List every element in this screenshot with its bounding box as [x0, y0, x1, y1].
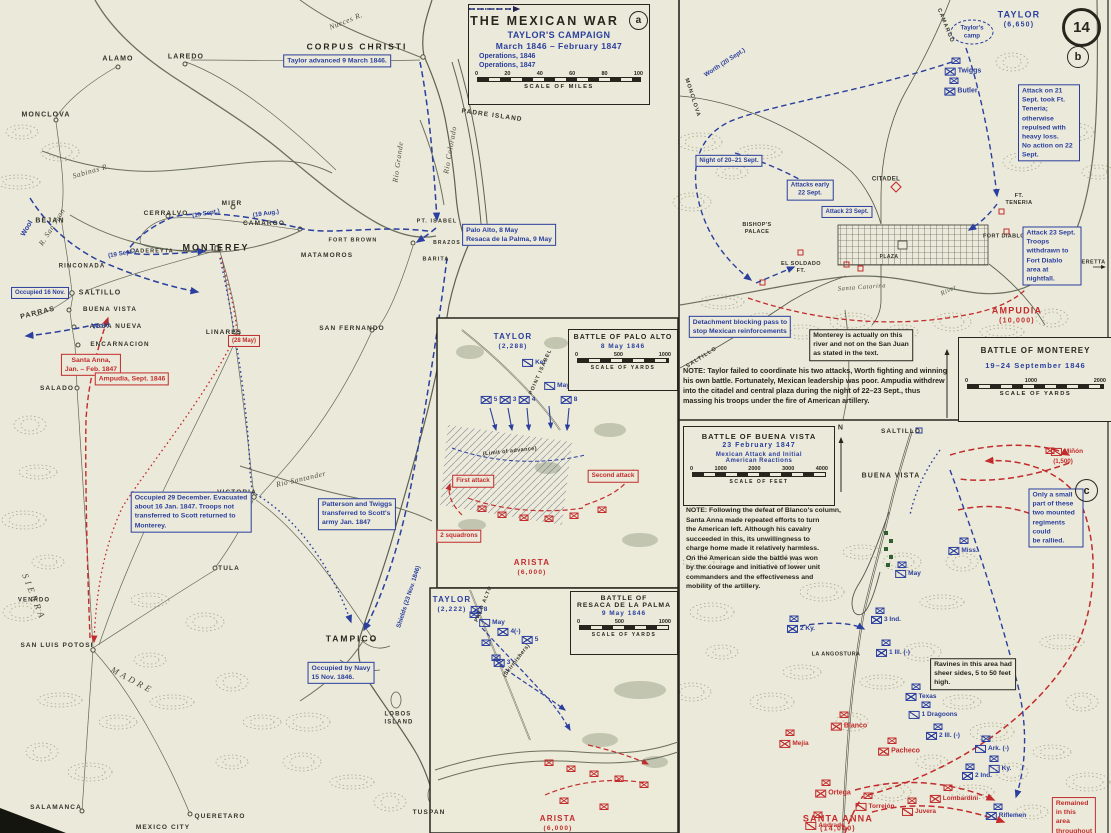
panel-c-badge: c: [1075, 479, 1098, 502]
unit-label-4: 4: [519, 396, 536, 404]
miles-scale-caption: SCALE OF MILES: [469, 84, 649, 90]
unit-label-pacheco: Pacheco: [878, 748, 920, 757]
resaca-scale-caption: SCALE OF YARDS: [571, 632, 677, 638]
place-label-parras: PARRAS: [20, 305, 57, 322]
unit-label-twiggs: Twiggs: [945, 68, 982, 77]
place-label-cerralvo: CERRALVO: [144, 210, 189, 218]
scale-bar: [579, 625, 669, 630]
place-label-matamoros: MATAMOROS: [301, 252, 353, 260]
place-label-arista: ARISTA: [514, 558, 550, 568]
unit-label-lombardini: Lombardini: [930, 795, 978, 803]
place-label-lobos-island: LOBOS ISLAND: [385, 712, 414, 727]
note-box-ampudia-sept-1846: Ampudia, Sept. 1846: [95, 372, 169, 385]
unit-label-andrade: Andrade: [805, 822, 844, 830]
monterey-date: 19–24 September 1846: [959, 361, 1111, 370]
note-box-attack-23-sept-troops-withdr: Attack 23 Sept. Troops withdrawn to Fort…: [1023, 226, 1082, 285]
river-label-sabinas-r: Sabinas R.: [71, 161, 110, 181]
unit-label-texas: Texas: [906, 693, 937, 701]
place-label-arista: ARISTA: [540, 814, 576, 824]
unit-label-blanco: Blanco: [831, 723, 867, 732]
place-label-queretaro: QUERETARO: [195, 813, 246, 821]
note-box-remained-in-this-area-throug: Remained in this area throughout battle.: [1052, 797, 1096, 833]
monterey-scale-caption: SCALE OF YARDS: [959, 391, 1111, 397]
place-label-tuspan: TUSPAN: [413, 809, 446, 817]
place-label-taylor: TAYLOR: [998, 9, 1041, 20]
buena-vista-scale-caption: SCALE OF FEET: [684, 479, 834, 485]
place-label-2-222: (2,222): [438, 606, 467, 614]
map-dates: March 1846 – February 1847: [469, 41, 649, 51]
place-label-citadel: CITADEL: [872, 176, 900, 184]
unit-label-mejia: Mejia: [779, 740, 808, 748]
map-note-note-following-the-defeat-of: NOTE: Following the defeat of Blanco's c…: [686, 506, 862, 592]
note-box-second-attack: Second attack: [588, 470, 639, 483]
place-label-padre-island: PADRE ISLAND: [461, 108, 523, 125]
place-label-6-000: (6,000): [544, 825, 573, 833]
map-note-note-taylor-failed-to-coordi: NOTE: Taylor failed to coordinate his tw…: [683, 366, 951, 406]
place-label-15-sept: (15 Sept.): [192, 208, 221, 220]
unit-label-butler: Butler: [944, 88, 977, 97]
place-label-alamo: ALAMO: [102, 56, 133, 65]
river-label-r-san-juan: R. San Juan: [37, 206, 68, 247]
place-label-19-sept: (19 Sept.): [108, 248, 137, 260]
place-label-san-luis-potosi: SAN LUIS POTOSI: [20, 642, 93, 650]
unit-label-ortega: Ortega: [815, 790, 851, 799]
unit-label-miss: Miss.: [948, 547, 977, 555]
legend-operations-1846: Operations, 1846: [469, 53, 649, 60]
place-label-shields-23-nov-1846: Shields (23 Nov. 1846): [395, 565, 422, 629]
place-label-ampudia: AMPUDIA: [992, 305, 1042, 316]
unit-label-2-ill: 2 Ill. (-): [926, 732, 960, 740]
place-label-19-aug: (19 Aug.): [252, 208, 279, 219]
place-label-mier: MIER: [222, 200, 243, 208]
place-label-encarnacion: ENCARNACION: [90, 341, 149, 349]
panel-a-badge: a: [629, 11, 648, 30]
note-box-only-a-small-part-of-these-t: Only a small part of these two mounted r…: [1029, 488, 1084, 547]
place-label-worth-20-sept: Worth (20 Sept.): [703, 47, 747, 79]
note-box-attack-on-21-sept-took-ft-te: Attack on 21 Sept. took Ft. Teneria; oth…: [1018, 84, 1080, 161]
place-label-monclova: MONCLOVA: [682, 78, 701, 119]
note-box-2-squadrons: 2 squadrons: [436, 530, 481, 543]
note-box-occupied-by-navy-15-nov-1846: Occupied by Navy 15 Nov. 1846.: [308, 662, 375, 684]
legend-1847-label: Operations, 1847: [479, 62, 535, 69]
unit-label-ark: Ark. (-): [975, 745, 1009, 753]
map-number-badge: 14: [1062, 8, 1101, 47]
river-label-nueces-r: Nueces R.: [328, 10, 364, 32]
place-label-camargo: CAMARGO: [935, 8, 955, 45]
place-label-laredo: LAREDO: [168, 54, 204, 63]
place-label-limit-of-advance: (Limit of advance): [483, 446, 538, 459]
unit-label-5: 5: [481, 396, 498, 404]
note-box-occupied-16-nov: Occupied 16 Nov.: [11, 287, 69, 299]
place-label-cadereyta: CADEREYTA: [130, 249, 174, 256]
note-box-first-attack: First attack: [452, 475, 494, 488]
place-label-palo-alto: PALO ALTO: [474, 585, 495, 623]
place-label-buena-vista: BUENA VISTA: [862, 473, 921, 482]
place-label-tula: TULA: [218, 565, 240, 573]
note-box-28-may: (28 May): [228, 335, 260, 347]
buena-vista-date: 23 February 1847: [684, 442, 834, 449]
unit-label-5: 5: [522, 636, 539, 644]
resaca-date: 9 May 1846: [571, 610, 677, 617]
river-label-rio-grande: Rio Grande: [390, 141, 405, 183]
place-label-saltillo: SALTILLO: [79, 290, 122, 299]
place-label-buena-vista: BUENA VISTA: [83, 306, 137, 314]
unit-label-torrej-n: Torrejón: [856, 803, 895, 811]
place-label-wool: Wool: [20, 219, 36, 238]
place-label-taylor: TAYLOR: [494, 332, 533, 342]
place-label-taylor: TAYLOR: [433, 595, 472, 605]
place-label-bishop-s-palace: BISHOP'S PALACE: [742, 222, 771, 236]
unit-label-3: 3: [500, 396, 517, 404]
unit-label-mi-n: Miñón: [1051, 448, 1083, 456]
place-label-el-soldado-ft: EL SOLDADO FT.: [781, 261, 821, 275]
resaca-title-box: BATTLE OF RESACA DE LA PALMA 9 May 1846 …: [570, 591, 678, 655]
unit-label-may: May: [895, 570, 921, 578]
place-label-monclova: MONCLOVA: [21, 112, 70, 121]
note-box-patterson-and-twiggs-transfe: Patterson and Twiggs transferred to Scot…: [318, 498, 396, 530]
unit-label-may: May: [479, 619, 505, 627]
note-box-attacks-early-22-sept: Attacks early 22 Sept.: [787, 180, 834, 201]
place-label-ft-teneria: FT. TENERIA: [1006, 193, 1033, 207]
note-box-detachment-blocking-pass-to-: Detachment blocking pass to stop Mexican…: [689, 316, 791, 338]
unit-label-riflemen: Riflemen: [986, 812, 1026, 820]
palo-alto-date: 8 May 1846: [569, 343, 677, 350]
place-label-fort-diablo: FORT DIABLO: [983, 234, 1025, 241]
unit-label-2-ind: 2 Ind.: [962, 772, 992, 780]
place-label-tampico: TAMPICO: [326, 634, 379, 645]
place-label-plaza: PLAZA: [880, 254, 899, 260]
place-label-10-000: (10,000): [999, 318, 1035, 327]
unit-label-3-ind: 3 Ind.: [871, 616, 901, 624]
legend-operations-1847: Operations, 1847: [469, 62, 649, 69]
legend-1846-label: Operations, 1846: [479, 53, 535, 60]
map-labels-layer: ALAMOLAREDOMONCLOVABEJANCERRALVOMIERCAMA…: [0, 0, 1111, 833]
place-label-2-288: (2,288): [499, 343, 528, 351]
map-canvas: ALAMOLAREDOMONCLOVABEJANCERRALVOMIERCAMA…: [0, 0, 1111, 833]
river-label-s-i-e-r-r-a: S I E R R A: [19, 572, 47, 620]
note-box-palo-alto-8-may-resaca-de-la: Palo Alto, 8 May Resaca de la Palma, 9 M…: [462, 224, 556, 246]
unit-label-4: 4(-): [497, 628, 520, 636]
unit-label-ky: Ky.: [989, 765, 1012, 773]
place-label-corpus-christi: CORPUS CHRISTI: [307, 42, 408, 53]
scale-bar: [577, 358, 669, 363]
monterey-title: BATTLE OF MONTEREY: [959, 346, 1111, 355]
note-box-taylor-advanced-9-march-1846: Taylor advanced 9 March 1846.: [283, 54, 391, 67]
place-label-camargo: CAMARGO: [243, 220, 285, 228]
scale-bar: [477, 77, 641, 82]
scale-bar: [967, 384, 1104, 389]
place-label-6-650: (6,650): [1004, 22, 1035, 31]
panel-b-badge: b: [1067, 46, 1089, 68]
note-box-monterey-is-actually-on-this: Monterey is actually on this river and n…: [809, 329, 913, 361]
place-label-la-angostura: LA ANGOSTURA: [812, 652, 861, 659]
map-title-box: THE MEXICAN WAR a TAYLOR'S CAMPAIGN Marc…: [468, 4, 650, 105]
note-box-attack-23-sept: Attack 23 Sept.: [821, 206, 872, 218]
unit-label-1-dragoons: 1 Dragoons: [909, 711, 958, 719]
unit-label-may: May: [544, 382, 570, 390]
palo-alto-title-box: BATTLE OF PALO ALTO 8 May 1846 05001000 …: [568, 329, 678, 391]
scale-bar: [692, 472, 826, 477]
river-label-rio-colorado: Rio Colorado: [441, 125, 459, 174]
place-label-barita: BARITA: [423, 257, 450, 264]
place-label-san-fernando: SAN FERNANDO: [319, 325, 385, 333]
buena-vista-subtitle: Mexican Attack and Initial American Reac…: [684, 452, 834, 464]
place-label-brazos: BRAZOS: [433, 240, 461, 246]
unit-label-8: 8: [561, 396, 578, 404]
place-label-n: N: [838, 425, 844, 434]
place-label-monterey: MONTEREY: [182, 242, 249, 253]
river-label-river: River: [940, 284, 959, 299]
place-label-pt-isabel: PT. ISABEL: [417, 219, 458, 226]
unit-label-1-ill: 1 Ill. (-): [876, 649, 910, 657]
unit-label-2-ky: 2 Ky.: [787, 625, 815, 633]
place-label-saltillo: SALTILLO: [881, 428, 921, 436]
dotted-arrow-icon: [469, 5, 521, 13]
river-label-santa-catarina: Santa Catarina: [838, 282, 887, 293]
place-label-1-500: (1,500): [1053, 458, 1073, 466]
river-label-rio-santander: Rio Santander: [275, 469, 327, 490]
buena-vista-title-box: BATTLE OF BUENA VISTA 23 February 1847 M…: [683, 426, 835, 506]
palo-alto-scale-caption: SCALE OF YARDS: [569, 365, 677, 371]
place-label-rinconada: RINCONADA: [59, 263, 106, 271]
place-label-fort-brown: FORT BROWN: [329, 238, 378, 245]
resaca-title: BATTLE OF RESACA DE LA PALMA: [571, 595, 677, 609]
place-label-taylor-s-camp: Taylor's camp: [960, 24, 983, 40]
place-label-mexico-city: MEXICO CITY: [136, 824, 190, 832]
buena-vista-title: BATTLE OF BUENA VISTA: [684, 432, 834, 441]
place-label-salamanca: SALAMANCA: [30, 804, 82, 812]
note-box-occupied-29-december-evacuat: Occupied 29 December. Evacuated about 16…: [131, 492, 252, 533]
river-label-m-a-d-r-e: M A D R E: [109, 665, 154, 696]
map-subtitle: TAYLOR'S CAMPAIGN: [469, 30, 649, 40]
note-box-night-of-20-21-sept: Night of 20–21 Sept.: [695, 155, 762, 167]
place-label-6-000: (6,000): [518, 569, 547, 577]
note-box-ravines-in-this-area-had-she: Ravines in this area had sheer sides, 5 …: [930, 658, 1016, 690]
monterey-title-box: BATTLE OF MONTEREY 19–24 September 1846 …: [958, 337, 1111, 422]
map-title: THE MEXICAN WAR: [470, 14, 619, 28]
palo-alto-title: BATTLE OF PALO ALTO: [569, 334, 677, 341]
unit-label-juvera: Juvera: [902, 808, 936, 816]
place-label-salado: SALADO: [40, 385, 74, 393]
